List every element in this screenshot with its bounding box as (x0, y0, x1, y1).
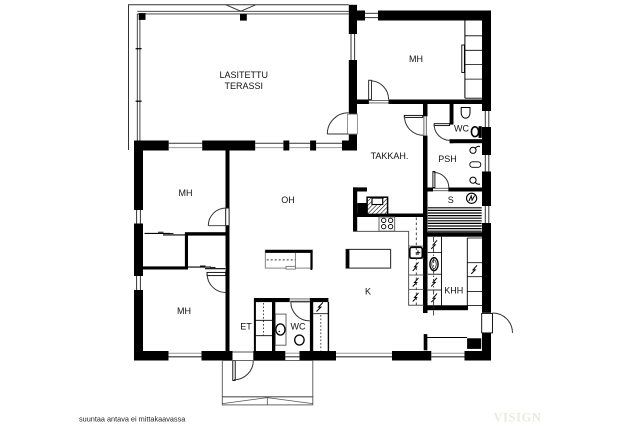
svg-text:MH: MH (409, 54, 423, 64)
svg-text:WC: WC (291, 322, 306, 332)
svg-text:TERASSI: TERASSI (225, 81, 264, 91)
svg-text:K: K (365, 287, 371, 297)
svg-text:VISIGN: VISIGN (494, 411, 542, 425)
svg-text:suuntaa antava ei mittakaavass: suuntaa antava ei mittakaavassa (79, 414, 186, 423)
svg-text:MH: MH (177, 306, 191, 316)
svg-text:MH: MH (179, 188, 193, 198)
svg-text:PSH: PSH (438, 154, 457, 164)
svg-text:S: S (448, 195, 454, 205)
svg-text:LASITETTU: LASITETTU (220, 70, 269, 80)
svg-text:WC: WC (454, 124, 469, 134)
svg-text:OH: OH (281, 195, 295, 205)
svg-text:TAKKAH.: TAKKAH. (371, 151, 409, 161)
svg-text:KHH: KHH (444, 286, 463, 296)
svg-text:ET: ET (240, 322, 252, 332)
